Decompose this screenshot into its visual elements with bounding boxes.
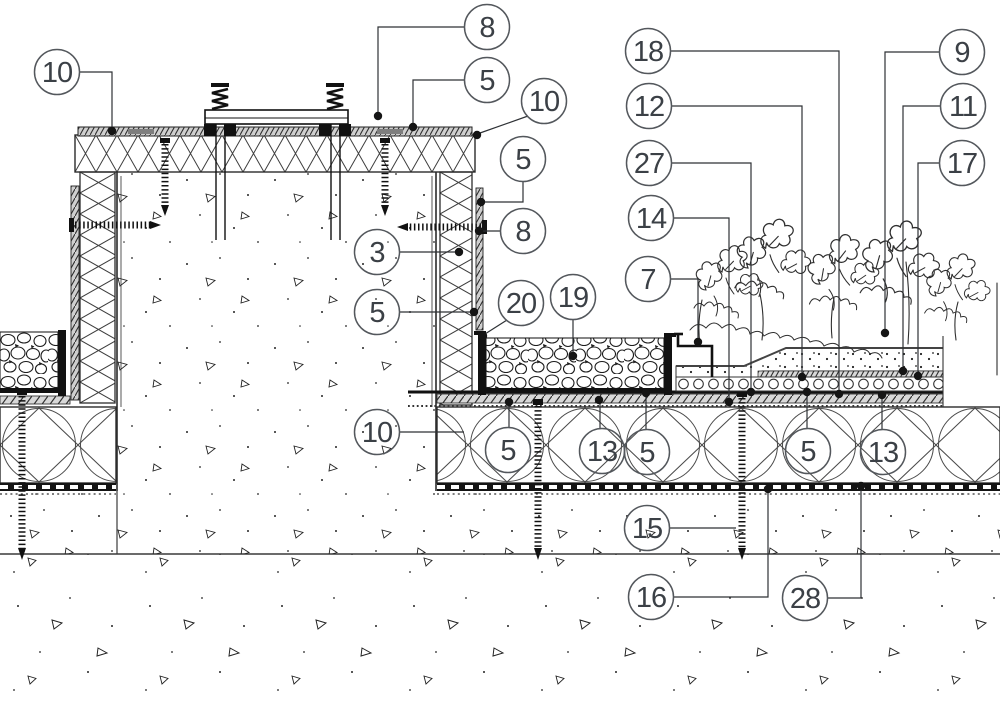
callout-number: 10 xyxy=(42,57,72,89)
callout-number: 28 xyxy=(790,583,820,615)
callout-target-dot xyxy=(798,373,806,381)
callout-target-dot xyxy=(803,388,811,396)
callout-7-10: 7 xyxy=(626,257,703,347)
curb-top-insulation xyxy=(75,135,475,172)
gravel-edge-profile-inner xyxy=(478,331,486,395)
callout-number: 19 xyxy=(558,282,588,314)
callout-leader-line xyxy=(79,72,112,128)
gravel-edge-profile-left xyxy=(58,330,66,396)
callout-number: 27 xyxy=(634,148,664,180)
callout-leader-line xyxy=(378,27,465,112)
detail-drawing-canvas: 1085105835201971427121891117105135513151… xyxy=(0,0,1000,708)
callout-leader-line xyxy=(671,106,802,374)
callout-5-4: 5 xyxy=(477,137,546,207)
callout-number: 16 xyxy=(636,582,666,614)
callout-target-dot xyxy=(505,398,513,406)
callout-number: 8 xyxy=(515,216,530,248)
concrete-slab xyxy=(0,491,1000,554)
curb-left-wall-insulation xyxy=(80,172,115,403)
callout-target-dot xyxy=(642,389,650,397)
callout-target-dot xyxy=(764,485,772,493)
callout-number: 3 xyxy=(369,237,384,269)
callout-target-dot xyxy=(694,338,702,346)
callout-8-5: 8 xyxy=(475,209,546,254)
callout-leader-line xyxy=(413,80,465,123)
callout-number: 12 xyxy=(634,91,664,123)
callout-number: 5 xyxy=(800,436,815,468)
callout-number: 5 xyxy=(479,65,494,97)
insulation-right-field xyxy=(437,407,1000,483)
callout-target-dot xyxy=(857,482,865,490)
curb-right-outer-membrane xyxy=(476,188,483,330)
callout-5-2: 5 xyxy=(409,58,510,132)
callout-10-0: 10 xyxy=(35,50,117,136)
gravel-strip-right xyxy=(486,338,664,390)
callout-number: 10 xyxy=(362,417,392,449)
callout-target-dot xyxy=(108,127,116,135)
callout-target-dot xyxy=(881,329,889,337)
callout-leader-line xyxy=(885,52,940,329)
callout-target-dot xyxy=(747,388,755,396)
construction-detail-section: 1085105835201971427121891117105135513151… xyxy=(0,0,1000,708)
callout-target-dot xyxy=(477,198,485,206)
callout-number: 10 xyxy=(529,86,559,118)
callout-9-15: 9 xyxy=(881,30,985,338)
callout-leader-line xyxy=(918,163,940,372)
callout-target-dot xyxy=(899,367,907,375)
callout-number: 5 xyxy=(500,435,515,467)
callout-target-dot xyxy=(409,123,417,131)
callout-leader-line xyxy=(480,116,528,133)
callout-target-dot xyxy=(595,396,603,404)
insulation-left-field xyxy=(0,407,116,483)
callout-leader-line xyxy=(484,181,523,202)
callout-target-dot xyxy=(914,372,922,380)
curb-right-wall-insulation xyxy=(440,172,472,405)
callout-number: 5 xyxy=(515,144,530,176)
callout-target-dot xyxy=(569,352,577,360)
callout-leader-line xyxy=(485,320,507,334)
callout-11-16: 11 xyxy=(899,84,986,376)
callout-20-8: 20 xyxy=(479,281,544,341)
callout-leader-line xyxy=(670,279,698,339)
callout-number: 9 xyxy=(954,37,969,69)
callout-number: 14 xyxy=(636,203,667,235)
callout-number: 7 xyxy=(640,264,655,296)
callout-target-dot xyxy=(835,390,843,398)
callout-number: 13 xyxy=(868,437,898,469)
callout-target-dot xyxy=(374,112,382,120)
callout-number: 13 xyxy=(587,436,617,468)
callout-target-dot xyxy=(878,391,886,399)
callout-target-dot xyxy=(479,332,487,340)
gravel-edge-profile-outer xyxy=(664,333,672,395)
callout-number: 8 xyxy=(479,12,494,44)
callout-number: 20 xyxy=(506,288,536,320)
callout-target-dot xyxy=(475,227,483,235)
gravel-strip-left xyxy=(0,332,58,389)
callout-target-dot xyxy=(470,308,478,316)
callout-number: 17 xyxy=(947,148,977,180)
callout-target-dot xyxy=(455,248,463,256)
lower-concrete-mass xyxy=(0,554,1000,708)
callout-number: 15 xyxy=(632,513,662,545)
callout-number: 5 xyxy=(369,297,384,329)
callout-target-dot xyxy=(473,131,481,139)
callout-number: 5 xyxy=(639,437,654,469)
callout-number: 11 xyxy=(949,91,977,123)
callout-number: 18 xyxy=(633,36,663,68)
callout-target-dot xyxy=(725,398,733,406)
